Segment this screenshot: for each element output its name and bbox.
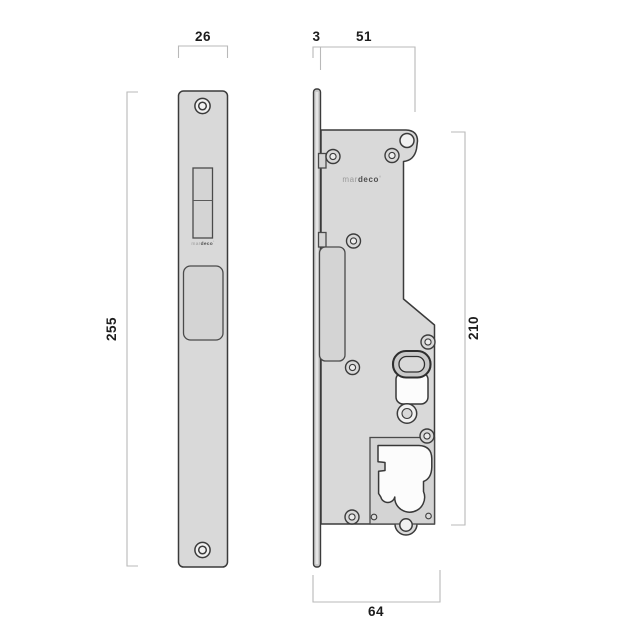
screw-hole-top-inner: [199, 102, 207, 110]
rivet-center: [330, 153, 336, 159]
mounting-ear-hole: [400, 134, 414, 148]
screw-hole-bottom-inner: [199, 546, 207, 554]
spindle-ring-inner: [402, 409, 412, 419]
dim-label-body-height: 210: [466, 316, 481, 340]
rivet-center: [389, 152, 395, 158]
rivet-center: [425, 339, 431, 345]
brand-logo-front: mardeco°: [191, 241, 215, 247]
bottom-tab-hole: [400, 519, 412, 531]
drawing-canvas: mardeco° mardeco°: [0, 0, 640, 640]
snib-slot-inner: [399, 357, 425, 373]
dim-label-body-depth: 51: [356, 29, 372, 44]
dim-line-overall-depth: [313, 570, 440, 602]
magnet-cutout: [184, 266, 224, 340]
dim-label-overall-depth: 64: [368, 604, 384, 619]
dim-label-front-width: 26: [195, 29, 211, 44]
rivet-center: [349, 364, 355, 370]
dim-label-thickness: 3: [312, 29, 320, 44]
fixing-notch-top: [319, 154, 327, 169]
dim-label-front-height: 255: [104, 317, 119, 341]
side-view: mardeco°: [314, 89, 436, 567]
rivet-center: [424, 433, 430, 439]
cylinder-screw-right: [426, 513, 432, 519]
dim-line-body-height: [451, 132, 465, 525]
euro-cylinder-cutout: [378, 446, 432, 513]
latch-bolt: [193, 168, 213, 238]
brand-logo-side: mardeco°: [342, 175, 381, 184]
mechanism-housing: [320, 247, 346, 361]
fixing-notch-mid: [319, 233, 327, 248]
faceplate-edge-highlight: [316, 92, 319, 564]
lock-technical-drawing: mardeco° mardeco°: [0, 0, 640, 640]
cylinder-screw-left: [371, 514, 377, 520]
front-view: mardeco°: [179, 91, 228, 567]
rivet-center: [349, 514, 355, 520]
dim-line-thickness-depth: [313, 47, 415, 112]
dim-line-front-height: [127, 92, 138, 566]
dim-line-front-width: [179, 46, 228, 58]
rivet-center: [350, 238, 356, 244]
